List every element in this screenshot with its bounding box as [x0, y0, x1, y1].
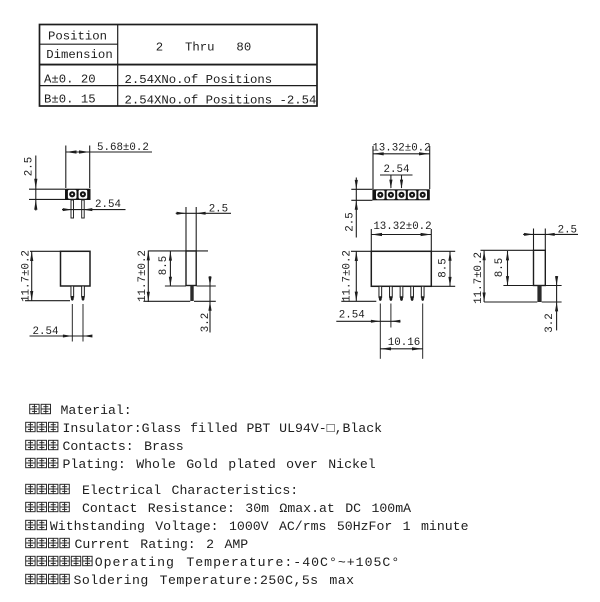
- svg-text:3.2: 3.2: [200, 313, 212, 332]
- svg-text:11.7±0.2: 11.7±0.2: [20, 250, 32, 302]
- svg-text:8.5: 8.5: [494, 258, 506, 277]
- svg-text:2 Thru 80: 2 Thru 80: [156, 41, 251, 55]
- svg-text:10.16: 10.16: [388, 337, 420, 349]
- svg-text:Current Rating: 2 AMP: Current Rating: 2 AMP: [75, 537, 249, 552]
- svg-text:2.54: 2.54: [339, 310, 365, 322]
- svg-text:Soldering Temperature:250C,5s: Soldering Temperature:250C,5s max: [74, 573, 355, 588]
- svg-text:11.7±0.2: 11.7±0.2: [137, 250, 149, 302]
- svg-text:13.32±0.2: 13.32±0.2: [372, 143, 430, 155]
- svg-text:5.68±0.2: 5.68±0.2: [97, 142, 149, 154]
- svg-text:A±0. 20: A±0. 20: [44, 73, 96, 87]
- svg-text:8.5: 8.5: [438, 258, 450, 277]
- svg-text:11.7±0.2: 11.7±0.2: [473, 252, 485, 304]
- svg-text:Insulator:Glass filled PBT UL9: Insulator:Glass filled PBT UL94V-□,Black: [63, 421, 383, 436]
- svg-text:2.54: 2.54: [384, 164, 410, 176]
- svg-text:2.54XNo.of Positions: 2.54XNo.of Positions: [125, 73, 273, 87]
- svg-text:2.5: 2.5: [558, 225, 577, 237]
- svg-text:Contact Resistance: 30m Ωmax.a: Contact Resistance: 30m Ωmax.at DC 100mA: [82, 501, 411, 516]
- svg-text:13.32±0.2: 13.32±0.2: [373, 221, 431, 233]
- svg-text:2.54XNo.of Positions -2.54: 2.54XNo.of Positions -2.54: [125, 94, 317, 108]
- svg-text:11.7±0.2: 11.7±0.2: [341, 250, 353, 302]
- svg-text:2.54: 2.54: [33, 326, 59, 338]
- svg-text:Contacts: Brass: Contacts: Brass: [63, 439, 184, 454]
- svg-text:3.2: 3.2: [544, 313, 556, 332]
- svg-text:2.5: 2.5: [24, 157, 36, 176]
- svg-text:Dimension: Dimension: [46, 48, 112, 62]
- svg-text:Material:: Material:: [61, 403, 132, 418]
- svg-text:8.5: 8.5: [158, 256, 170, 275]
- svg-text:Electrical Characteristics:: Electrical Characteristics:: [82, 483, 298, 498]
- svg-text:2.54: 2.54: [95, 199, 121, 211]
- svg-text:Position: Position: [48, 30, 107, 44]
- svg-text:Plating: Whole Gold plated ove: Plating: Whole Gold plated over Nickel: [63, 457, 376, 472]
- svg-text:B±0. 15: B±0. 15: [44, 93, 96, 107]
- svg-text:2.5: 2.5: [344, 212, 356, 231]
- svg-text:2.5: 2.5: [209, 204, 228, 216]
- svg-text:Withstanding Voltage: 1000V AC: Withstanding Voltage: 1000V AC/rms 50HzF…: [50, 519, 469, 534]
- svg-text:Operating Temperature:-40C°~+1: Operating Temperature:-40C°~+105C°: [95, 555, 401, 570]
